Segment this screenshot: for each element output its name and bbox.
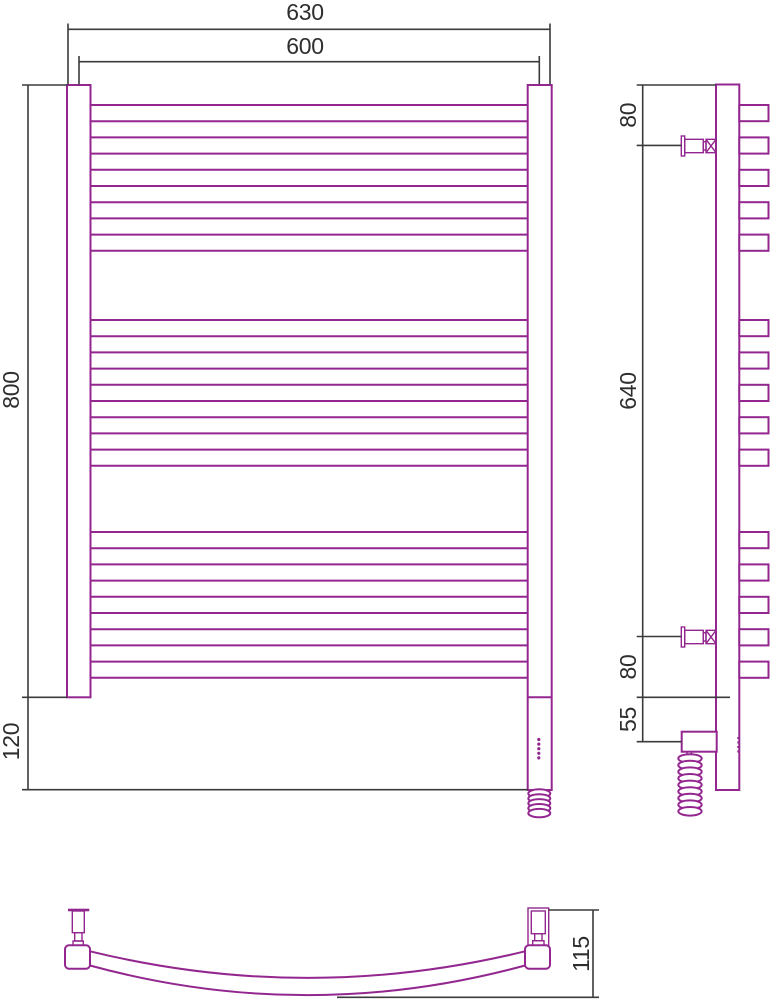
bottom-view: [65, 908, 550, 995]
left-collector-post: [67, 85, 91, 697]
dim-label-width-overall: 630: [286, 0, 323, 25]
front-view: [67, 85, 552, 817]
bracket-foot: [533, 941, 544, 946]
bottom-right-bracket: [528, 908, 549, 945]
tube-end-stub: [739, 137, 768, 153]
dim-lines-bottom-depth: [337, 910, 599, 997]
cable-coil-loop: [678, 807, 701, 816]
left-collector-section: [65, 945, 90, 968]
side-cable-coil: [678, 754, 701, 815]
dim-label-bracket-to-bottom: 80: [615, 655, 641, 680]
dim-label-depth: 115: [568, 936, 594, 972]
right-collector-post-with-heater: [528, 85, 552, 790]
led-indicator-dot: [537, 747, 540, 750]
tube-end-stub: [739, 320, 768, 336]
led-indicator-dot: [537, 738, 540, 741]
side-view: [678, 85, 768, 816]
led-indicator-dot: [537, 752, 540, 755]
tube-end-stub: [739, 385, 768, 401]
tube-end-stub: [739, 202, 768, 218]
right-collector-section: [525, 945, 550, 968]
tube-end-stub: [739, 532, 768, 548]
dimension-lines: 630 600 800 120 80 640 80 55 115: [0, 0, 730, 997]
tube-end-stub: [739, 450, 768, 466]
dim-label-width-mounting: 600: [286, 33, 323, 59]
tube-end-stub: [739, 105, 768, 121]
cable-coil-loop: [528, 809, 550, 817]
dim-label-top-to-bracket: 80: [615, 103, 641, 128]
bracket-body: [685, 139, 704, 152]
dim-label-bottom-to-heater: 55: [615, 707, 641, 732]
dim-label-heater-drop: 120: [0, 723, 24, 760]
tube-end-stub: [739, 170, 768, 186]
curved-tube-front-edge: [90, 951, 525, 978]
dim-label-bracket-spacing: 640: [615, 372, 641, 409]
curved-tube-back-edge: [90, 966, 525, 996]
tube-end-stub: [739, 662, 768, 678]
tube-end-stub: [739, 629, 768, 645]
led-indicator-dot: [537, 743, 540, 746]
led-indicator-dot: [537, 756, 540, 759]
tube-end-stub: [739, 235, 768, 251]
towel-rail-technical-drawing: 630 600 800 120 80 640 80 55 115: [0, 0, 772, 1000]
dim-label-height: 800: [0, 371, 24, 408]
bracket-collar-cross: [706, 630, 716, 643]
bracket-neck: [535, 934, 542, 941]
front-cable-coil: [528, 789, 550, 817]
tube-end-stub: [739, 417, 768, 433]
bracket-foot: [73, 941, 83, 945]
dim-lines-left-heights: [22, 85, 528, 790]
bracket-body: [685, 630, 704, 643]
side-tube-stubs: [739, 105, 768, 678]
tube-end-stub: [739, 352, 768, 368]
bracket-inner: [531, 911, 545, 934]
side-collector-tube: [716, 85, 739, 791]
bottom-left-bracket: [68, 909, 89, 946]
wall-bracket-bottom: [681, 627, 716, 647]
tube-end-stub: [739, 564, 768, 580]
front-tube-lines: [91, 105, 528, 678]
bracket-collar-cross: [706, 139, 716, 152]
bracket-stem: [72, 911, 84, 933]
bracket-neck: [75, 933, 82, 941]
wall-bracket-top: [681, 136, 716, 156]
side-heater-housing: [682, 732, 717, 752]
tube-end-stub: [739, 597, 768, 613]
